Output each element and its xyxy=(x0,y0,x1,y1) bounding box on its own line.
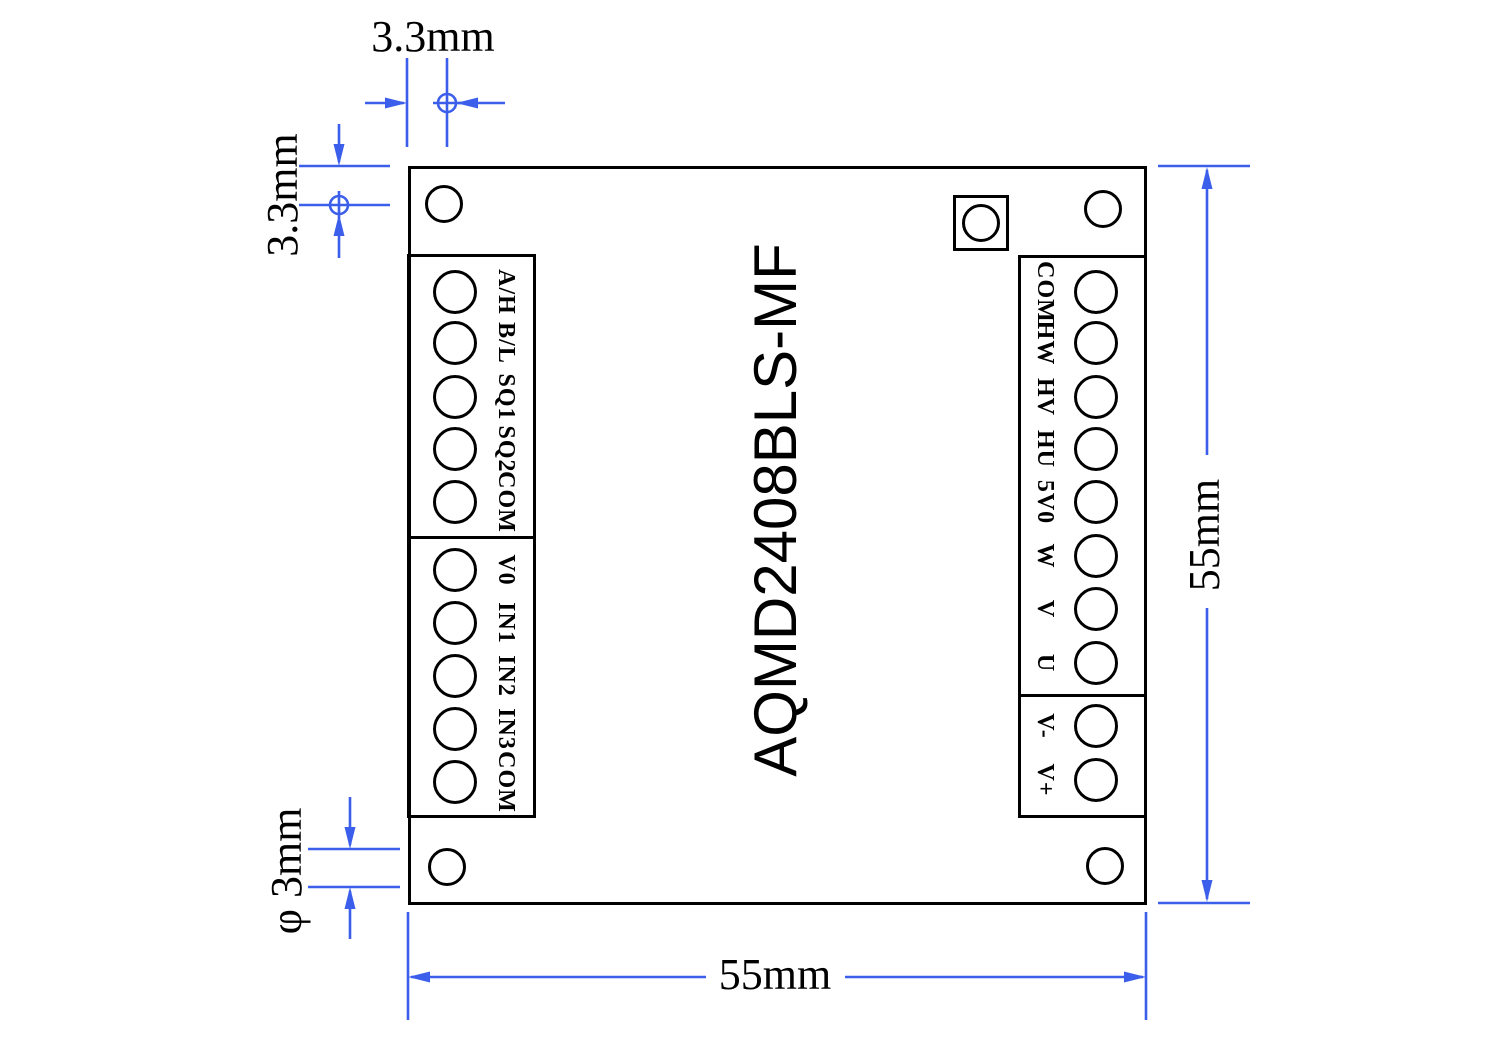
terminal-circle xyxy=(1074,480,1118,524)
dimension-label-top-offset: 3.3mm xyxy=(371,15,494,59)
terminal-label: IN3 xyxy=(494,708,518,750)
terminal-label: A/H xyxy=(494,269,518,315)
terminal-label: COM xyxy=(494,751,518,813)
dimension-label-left-offset: 3.3mm xyxy=(261,133,305,256)
terminal-circle xyxy=(1074,758,1118,802)
terminal-label: COM xyxy=(1033,261,1057,323)
mechanical-drawing: A/HB/LSQ1SQ2COMV0IN1IN2IN3COMCOMHWHVHU5V… xyxy=(0,0,1500,1039)
terminal-circle xyxy=(1074,704,1118,748)
terminal-label: COM xyxy=(494,471,518,533)
terminal-label: V0 xyxy=(494,554,518,585)
terminal-circle xyxy=(433,375,477,419)
terminal-label: IN1 xyxy=(494,602,518,644)
terminal-label: HW xyxy=(1033,321,1057,366)
terminal-label: B/L xyxy=(494,322,518,364)
terminal-circle xyxy=(433,321,477,365)
terminal-circle xyxy=(433,548,477,592)
terminal-label: W xyxy=(1033,544,1057,569)
dimension-label-board-height: 55mm xyxy=(1183,479,1227,591)
pcb-title: AQMD2408BLS-MF xyxy=(746,243,806,777)
terminal-label: U xyxy=(1033,654,1057,672)
mounting-hole-top-right xyxy=(1084,190,1122,228)
mounting-hole-bottom-left xyxy=(428,848,466,886)
terminal-circle xyxy=(433,707,477,751)
terminal-circle xyxy=(433,760,477,804)
mounting-hole-top-left xyxy=(425,185,463,223)
terminal-circle xyxy=(433,270,477,314)
dimension-label-board-width: 55mm xyxy=(719,953,831,997)
terminal-circle xyxy=(433,654,477,698)
terminal-circle xyxy=(1074,534,1118,578)
square-pad-hole xyxy=(962,204,1000,242)
terminal-label: SQ1 xyxy=(494,373,518,420)
terminal-label: SQ2 xyxy=(494,425,518,472)
terminal-circle xyxy=(1074,427,1118,471)
terminal-circle xyxy=(433,601,477,645)
terminal-label: HU xyxy=(1033,430,1057,468)
terminal-circle xyxy=(433,480,477,524)
terminal-circle xyxy=(433,427,477,471)
terminal-label: V+ xyxy=(1033,763,1057,796)
terminal-circle xyxy=(1074,587,1118,631)
mounting-hole-bottom-right xyxy=(1086,847,1124,885)
terminal-label: HV xyxy=(1033,378,1057,416)
terminal-label: IN2 xyxy=(494,655,518,697)
terminal-label: 5V0 xyxy=(1033,480,1057,524)
dimension-label-hole-diameter: φ 3mm xyxy=(265,808,309,935)
terminal-circle xyxy=(1074,375,1118,419)
terminal-circle xyxy=(1074,641,1118,685)
terminal-circle xyxy=(1074,321,1118,365)
terminal-circle xyxy=(1074,270,1118,314)
terminal-label: V- xyxy=(1033,713,1057,739)
terminal-label: V xyxy=(1033,600,1057,618)
